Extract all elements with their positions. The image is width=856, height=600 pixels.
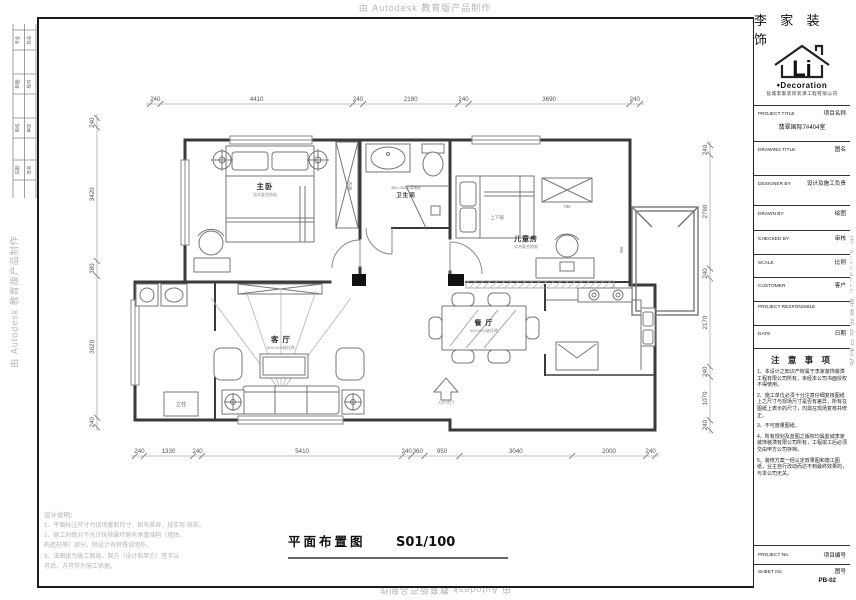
- svg-text:Li: Li: [792, 56, 812, 79]
- sign-strip-label: 专业: [14, 35, 21, 44]
- dim-label: 1070: [702, 391, 709, 405]
- plan-annotation: 上下铺: [490, 214, 504, 221]
- sign-strip-label: 校对: [26, 79, 33, 88]
- room-label: 卫生间: [396, 191, 416, 199]
- title-block-field: DESIGNER BY设计及施工负责: [754, 176, 850, 206]
- entrance-arrow-icon: [434, 378, 458, 400]
- design-note-line: 1、平面标注尺寸为现场量取尺寸，如有差异，按实际 核实。: [44, 521, 294, 531]
- project-no-row: PROJECT No. 项目编号: [754, 545, 850, 564]
- dim-label: 240: [192, 448, 203, 455]
- bunk-bed: [456, 176, 534, 238]
- sign-strip-label: 审核: [14, 123, 21, 132]
- title-block-field: DATE日期: [754, 326, 850, 349]
- dim-label: 5410: [295, 448, 309, 455]
- sign-strip-label: 审定: [26, 123, 33, 132]
- notice-item: 1、本设计之知识产权属于李家装饰装潢工程有限公司所有，未经本公司书面授权不得使用…: [757, 369, 847, 389]
- dim-label: 240: [702, 366, 709, 377]
- room-label: 餐 厅: [474, 318, 494, 327]
- master-wardrobe: [336, 142, 358, 228]
- hatched-wall-band: [466, 281, 614, 288]
- plan-annotation: 入户大门: [438, 399, 455, 406]
- dim-label: 3420: [89, 187, 96, 201]
- dim-label: 240: [702, 419, 709, 430]
- brand-name: 李 家 装 饰: [754, 17, 850, 41]
- sheet-title-label: 平面布置图: [288, 535, 366, 549]
- bathroom-fixtures: [366, 144, 448, 254]
- master-door-arc: [332, 240, 360, 268]
- company-logo: Li •Decoration: [754, 41, 850, 91]
- dim-label: 380: [89, 263, 96, 274]
- dim-label: 3040: [509, 448, 523, 455]
- dim-chain: 240279024021702401070240: [702, 141, 713, 434]
- title-block-field: DRAWN BY绘图: [754, 206, 850, 231]
- dim-label: 240: [458, 96, 469, 103]
- notice-section: 注 意 事 项 1、本设计之知识产权属于李家装饰装潢工程有限公司所有，未经本公司…: [754, 349, 850, 545]
- master-desk-chair: [194, 229, 230, 272]
- sheet-title: 平面布置图 S01/100: [288, 531, 508, 559]
- dim-label: 4410: [250, 96, 264, 103]
- company-name: 盐城李家装饰装潢工程有限公司: [754, 91, 850, 106]
- dim-label: 240: [89, 117, 96, 128]
- dim-label: 240: [702, 144, 709, 155]
- dim-label: 240: [134, 448, 145, 455]
- children-wardrobe: [542, 178, 592, 202]
- dim-label: 240: [645, 448, 656, 455]
- room-sub-label: 实木复合地板: [514, 243, 538, 249]
- dim-label: 3690: [542, 96, 556, 103]
- sheet-title-scale: S01/100: [396, 535, 455, 550]
- dim-label: 2790: [702, 204, 709, 218]
- title-block-field: SCALE比例: [754, 255, 850, 278]
- dim-label: 240: [353, 96, 364, 103]
- dim-label: 2170: [702, 315, 709, 329]
- dim-label: 1330: [162, 448, 176, 455]
- room-sub-label: 800×800玻化砖: [267, 344, 295, 350]
- dim-label: 3620: [89, 339, 96, 353]
- plan-annotation: 900: [619, 247, 624, 255]
- notice-item: 2、施工单位必须十分注意仔细复核图纸上之尺寸与现场尺寸是否有差异，所有在图纸上表…: [757, 393, 847, 419]
- title-block-field: CHECKED BY审核: [754, 231, 850, 255]
- title-block-field: PROJECT TITLE项目名称翡翠国际7#404室: [754, 106, 850, 142]
- notice-item: 4、所有规划及蓝图之版权均属盐城李家装饰装潢有限公司所有，工程竣工后必须交由甲方…: [757, 434, 847, 454]
- dim-label: 240: [89, 417, 96, 428]
- sign-strip: 专业姓名制图校对审核审定日期签名: [13, 24, 36, 198]
- sheet-number: PB-02: [758, 577, 846, 584]
- title-block-field: DRAWING TITLE图名: [754, 142, 850, 176]
- design-note-line: 3、该图纸为施工图纸，双方（设计和甲方）签字认: [44, 552, 294, 562]
- logo-decoration-text: •Decoration: [754, 80, 850, 90]
- notice-item: 5、装修方案一经认定效果图和施工图纸，业主自行改动而达不到最终效果的，与本公司无…: [757, 458, 847, 478]
- dim-chain: 24034203803620240: [89, 114, 100, 431]
- dim-label: 240: [401, 448, 412, 455]
- dim-label: 240: [150, 96, 161, 103]
- plan-annotation: 立柱: [175, 400, 187, 408]
- dim-label: 240: [630, 96, 641, 103]
- plan-annotation: 300×300防滑地砖: [391, 185, 421, 190]
- title-block-field: PROJECT RESPONSIBLE: [754, 302, 850, 326]
- children-desk-chair: [536, 234, 594, 278]
- sign-strip-label: 姓名: [26, 36, 33, 45]
- design-note-line: 构造柱等）部分，除设计有特殊说明外。: [44, 541, 294, 551]
- dim-label: 240: [702, 268, 709, 279]
- laundry: [136, 284, 198, 416]
- room-label: 儿童房: [513, 234, 538, 243]
- children-door-arc: [450, 242, 482, 274]
- room-label: 主卧: [257, 181, 274, 191]
- design-note-line: 2、施工时绝对不允许拆除破坏原有承重结构（墙体、: [44, 531, 294, 541]
- dim-label: 2180: [404, 96, 418, 103]
- sign-strip-label: 日期: [15, 165, 21, 174]
- dim-chain: 240441024021802403690240: [146, 96, 644, 107]
- room-sub-label: 800×800玻化砖: [470, 327, 498, 333]
- kitchen: [546, 288, 655, 370]
- room-sub-label: 实木复合地板: [253, 191, 277, 197]
- wall-columns: [352, 274, 464, 286]
- notice-title: 注 意 事 项: [757, 354, 847, 366]
- tv-unit: [238, 284, 322, 294]
- drawing-sheet: 由 Autodesk 教育版产品制作 由 Autodesk 教育版产品制作 由 …: [0, 0, 856, 600]
- plan-annotation: 衣柜: [346, 182, 353, 191]
- sheet-no-row: SHEET No. 图号 PB-02: [754, 564, 850, 590]
- dim-label: 2000: [602, 448, 616, 455]
- notice-item: 3、不可度量图纸。: [757, 423, 847, 430]
- title-block: 李 家 装 饰 Li •Decoration 盐城李家装饰装潢工程有限公司 PR…: [753, 17, 850, 588]
- dim-label: 360: [413, 448, 424, 455]
- design-notes-title: 设计说明：: [44, 510, 294, 521]
- sign-strip-label: 签名: [26, 166, 33, 175]
- design-note-line: 可后，方可作为施工依据。: [44, 562, 294, 572]
- sign-strip-label: 制图: [14, 79, 21, 88]
- balcony-right: [632, 207, 698, 315]
- dim-label: 950: [437, 448, 448, 455]
- design-notes: 设计说明： 1、平面标注尺寸为现场量取尺寸，如有差异，按实际 核实。2、施工时绝…: [44, 510, 294, 572]
- dim-chain: 2401330240541024036095030402000240: [131, 448, 659, 459]
- title-block-field: CUSTOMER客户: [754, 278, 850, 302]
- field-value: 翡翠国际7#404室: [758, 122, 846, 131]
- plan-annotation: 780: [564, 204, 572, 209]
- room-label: 客 厅: [270, 334, 291, 344]
